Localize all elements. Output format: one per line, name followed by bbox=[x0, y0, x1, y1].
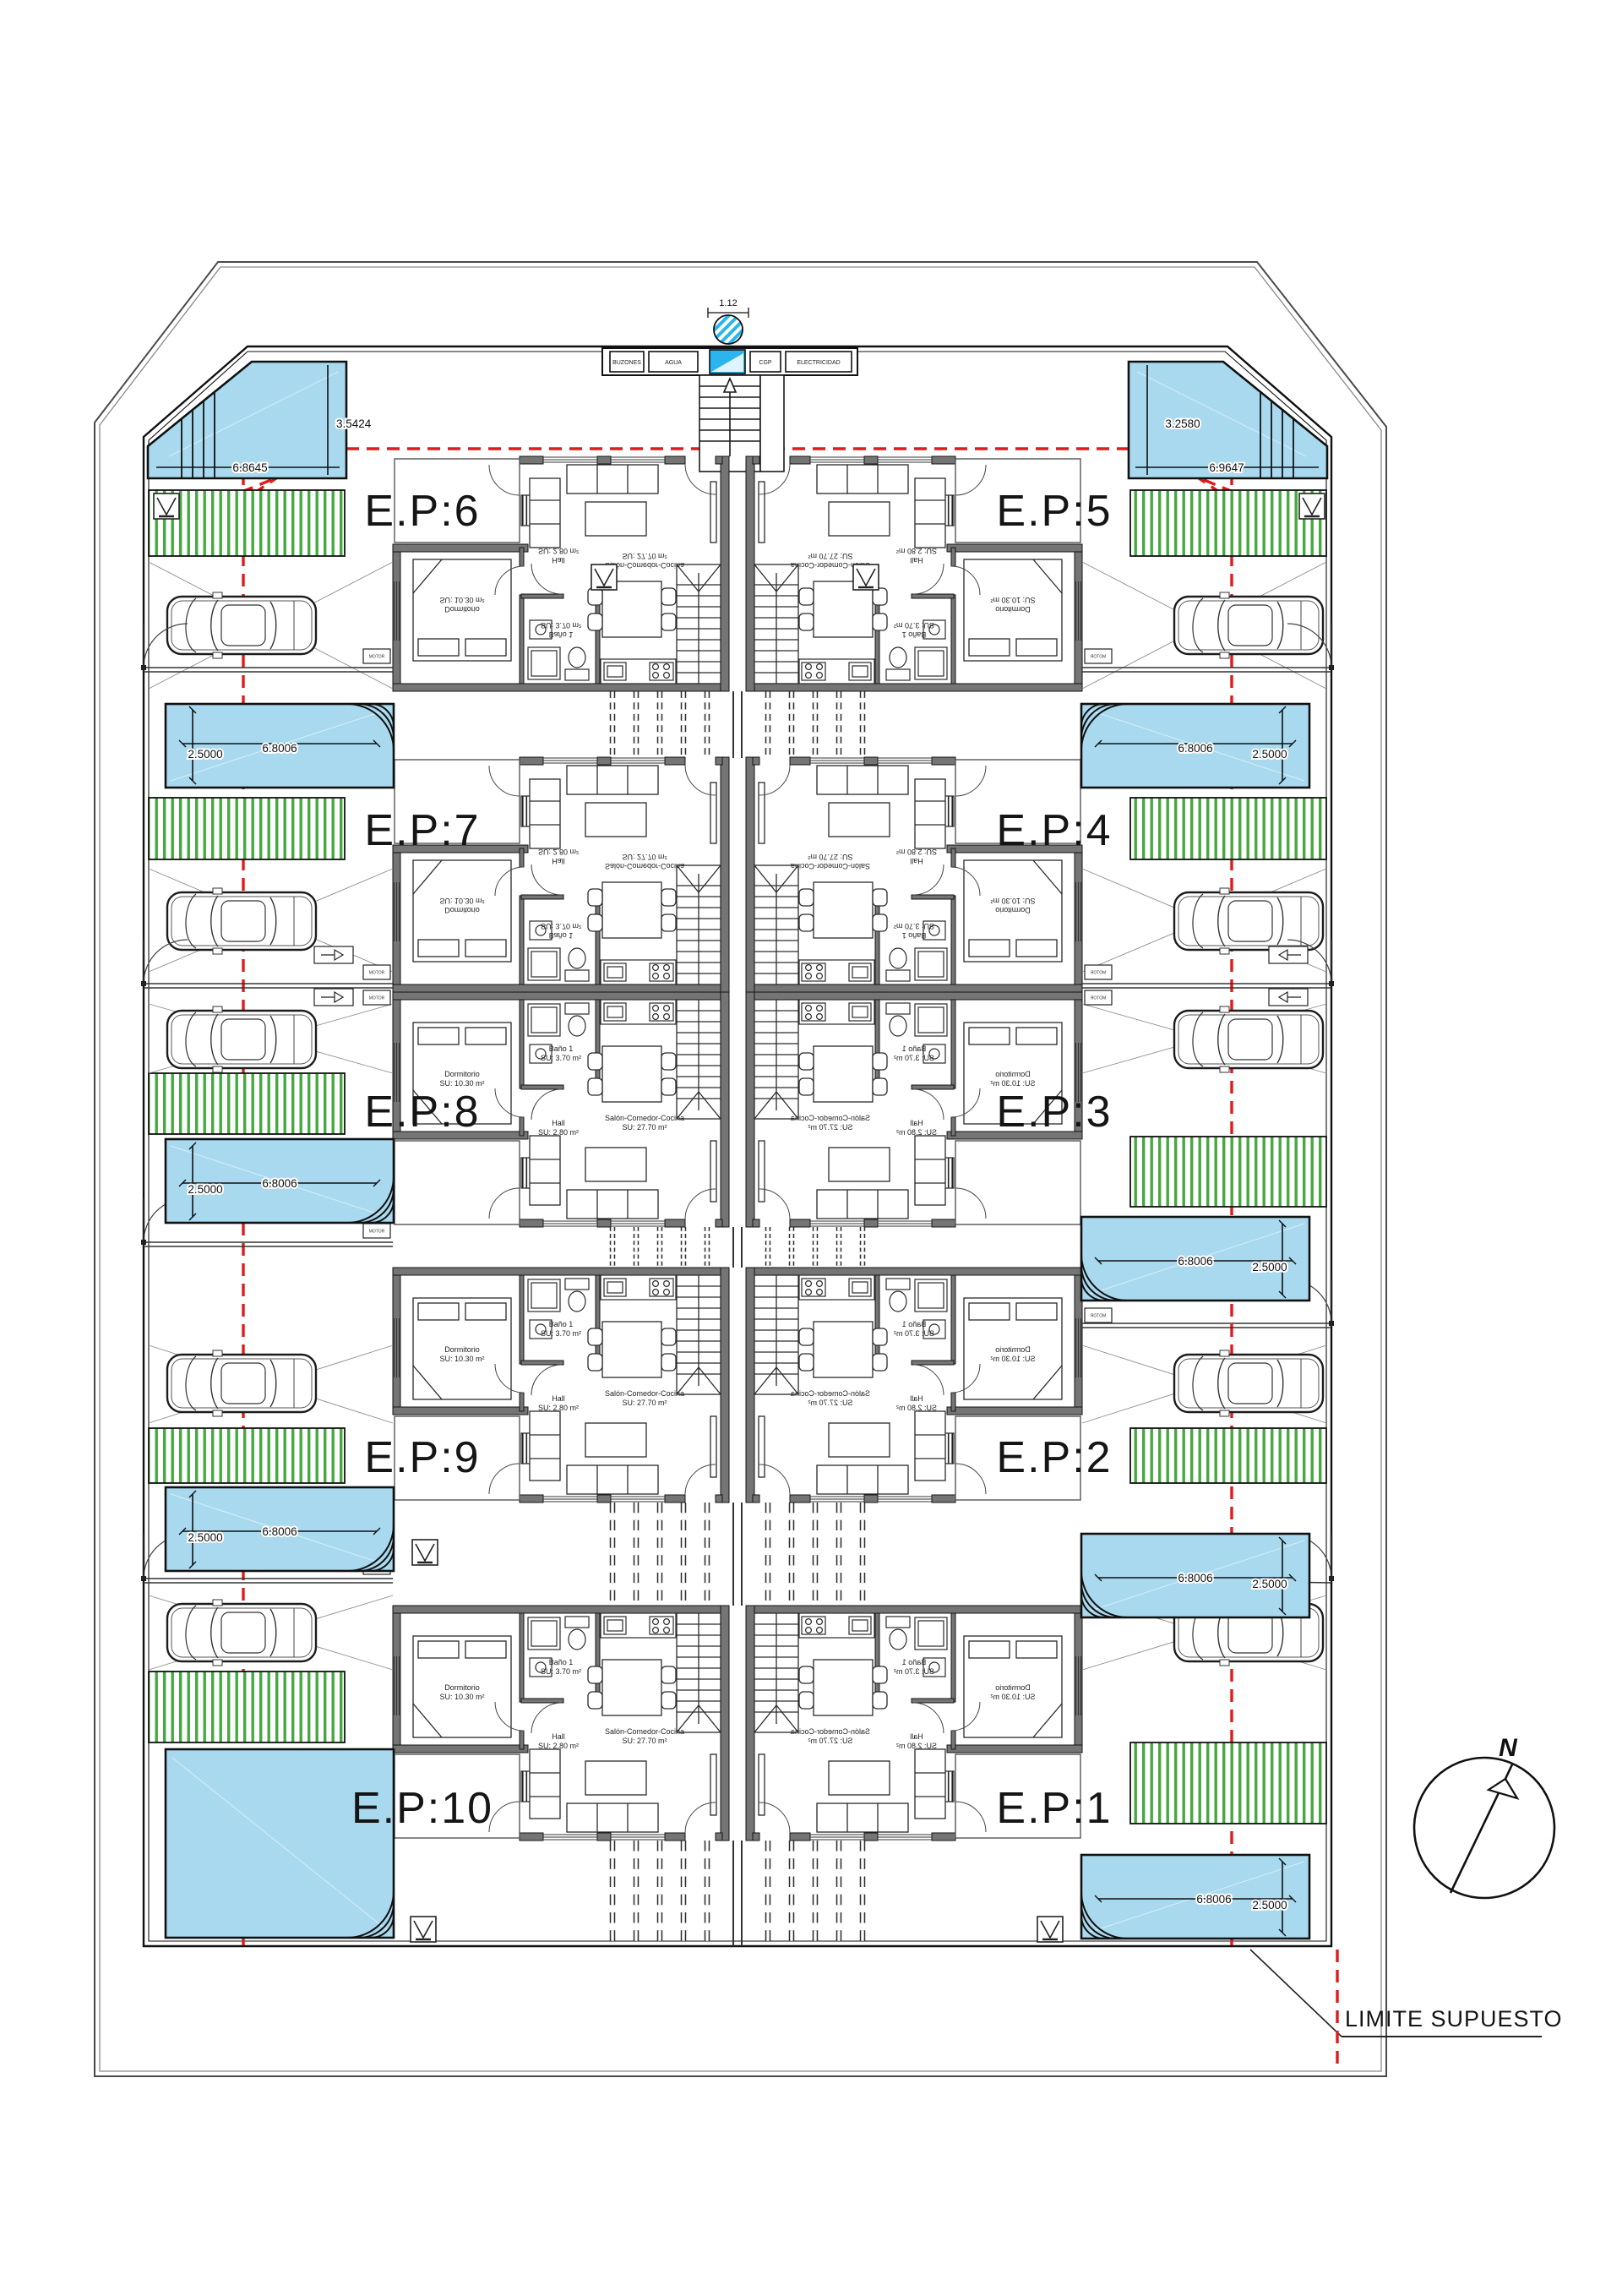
vbox-2 bbox=[1299, 494, 1325, 519]
label-ep5: E.P:5 bbox=[996, 487, 1112, 536]
gap-dashes-3 bbox=[612, 1502, 863, 1606]
vbox-5 bbox=[412, 1540, 438, 1565]
garden-left-4 bbox=[149, 1428, 345, 1483]
dim-r3-w: 6.8006 bbox=[1178, 1255, 1212, 1268]
dim-l2-w: 6.8006 bbox=[262, 742, 297, 755]
label-ep10: E.P:10 bbox=[351, 1784, 493, 1833]
vestibule-left-a bbox=[314, 946, 353, 963]
motor-right-2a bbox=[1085, 965, 1112, 979]
motor-left-2b bbox=[363, 990, 390, 1005]
garden-right-3 bbox=[1130, 1137, 1326, 1207]
north-label: N bbox=[1499, 1734, 1518, 1762]
car-right-4 bbox=[1174, 1350, 1323, 1416]
car-left-5 bbox=[167, 1600, 316, 1666]
garden-right-2 bbox=[1130, 798, 1326, 859]
car-right-2 bbox=[1174, 888, 1323, 954]
unit-ep7 bbox=[393, 757, 729, 992]
label-ep4: E.P:4 bbox=[996, 806, 1112, 855]
limit-leader-line bbox=[1250, 1950, 1342, 2037]
vbox-1 bbox=[154, 494, 179, 519]
vbox-7 bbox=[411, 1917, 436, 1942]
car-right-3 bbox=[1174, 1006, 1323, 1072]
garden-right-5 bbox=[1130, 1742, 1326, 1824]
dim-r3-h: 2.5000 bbox=[1252, 1261, 1287, 1273]
pool-top-left: 3.5424 6.8645 bbox=[148, 362, 372, 478]
garden-left-2 bbox=[149, 798, 345, 859]
pool-bottom-right bbox=[1081, 1855, 1309, 1939]
label-ep2: E.P:2 bbox=[996, 1433, 1112, 1482]
motor-left-1 bbox=[363, 649, 390, 663]
utility-dim: 1.12 bbox=[719, 298, 737, 308]
label-ep3: E.P:3 bbox=[996, 1088, 1112, 1137]
dim-rb-w: 6.8006 bbox=[1196, 1893, 1231, 1906]
dim-r2-h: 2.5000 bbox=[1252, 748, 1287, 761]
vestibule-right-a bbox=[1269, 946, 1308, 963]
dim-l2-h: 2.5000 bbox=[188, 748, 222, 761]
label-ep6: E.P:6 bbox=[364, 487, 480, 536]
garden-left-3 bbox=[149, 1073, 345, 1134]
water-meter-circle bbox=[714, 315, 743, 344]
site-plan-page: MOTOR bbox=[0, 0, 1622, 2296]
vbox-8 bbox=[1037, 1917, 1063, 1942]
dim-l4-h: 2.5000 bbox=[188, 1531, 222, 1544]
car-left-4 bbox=[167, 1350, 316, 1416]
garden-right-4 bbox=[1130, 1428, 1326, 1483]
label-ep7: E.P:7 bbox=[364, 806, 480, 855]
dim-l3-h: 2.5000 bbox=[188, 1183, 222, 1196]
common-stair bbox=[699, 375, 784, 472]
pool-dimensions: 6.8006 2.5000 6.8006 2.5000 6.8006 2.500… bbox=[188, 742, 1287, 1912]
buzones-box-label: BUZONES bbox=[612, 360, 641, 366]
label-ep9: E.P:9 bbox=[364, 1433, 480, 1482]
motor-right-1 bbox=[1085, 649, 1112, 663]
motor-left-3 bbox=[363, 1224, 390, 1238]
pool-bottom-left-large bbox=[166, 1749, 394, 1938]
dim-l3-w: 6.8006 bbox=[262, 1177, 297, 1190]
car-left-2 bbox=[167, 888, 316, 954]
site-plan-drawing: MOTOR bbox=[0, 0, 1622, 2296]
vbox-4 bbox=[853, 564, 879, 590]
electricidad-box-label: ELECTRICIDAD bbox=[797, 360, 840, 366]
agua-box-label: AGUA bbox=[665, 360, 682, 366]
dim-rb-h: 2.5000 bbox=[1252, 1899, 1287, 1912]
pool-tl-h-dim: 3.5424 bbox=[336, 417, 372, 430]
dim-r2-w: 6.8006 bbox=[1178, 742, 1212, 755]
motor-right-2b bbox=[1085, 990, 1112, 1005]
limit-label: LIMITE SUPUESTO bbox=[1345, 2006, 1563, 2031]
garden-left-5 bbox=[149, 1672, 345, 1742]
pool-top-right: 3.2580 6.9647 bbox=[1129, 362, 1327, 478]
gap-dashes-2 bbox=[612, 1227, 863, 1268]
dim-l4-w: 6.8006 bbox=[262, 1525, 297, 1538]
party-wall-gap-lines bbox=[733, 691, 742, 1946]
dim-r4-h: 2.5000 bbox=[1252, 1578, 1287, 1590]
motor-left-2a bbox=[363, 965, 390, 979]
north-compass: N bbox=[1414, 1734, 1554, 1898]
motor-right-3 bbox=[1085, 1308, 1112, 1323]
gap-dashes-1 bbox=[612, 691, 863, 758]
car-left-3 bbox=[167, 1006, 316, 1072]
vestibule-right-b bbox=[1269, 989, 1308, 1006]
label-ep1: E.P:1 bbox=[996, 1784, 1112, 1833]
label-ep8: E.P:8 bbox=[364, 1088, 480, 1137]
garden-right-1 bbox=[1130, 490, 1326, 556]
gap-dashes-4 bbox=[612, 1841, 863, 1946]
dim-r4-w: 6.8006 bbox=[1178, 1572, 1212, 1584]
pool-tr-w-dim: 6.9647 bbox=[1209, 461, 1244, 474]
pool-tr-h-dim: 3.2580 bbox=[1165, 417, 1200, 430]
cgp-box-label: CGP bbox=[759, 360, 772, 366]
unit-ep4 bbox=[746, 757, 1082, 992]
vbox-3 bbox=[591, 564, 617, 590]
vestibule-left-b bbox=[314, 989, 353, 1006]
utility-strip: BUZONES AGUA CGP ELECTRICIDAD 1.12 bbox=[602, 298, 857, 472]
pool-tl-w-dim: 6.8645 bbox=[232, 461, 267, 474]
car-left-1 bbox=[167, 592, 316, 658]
